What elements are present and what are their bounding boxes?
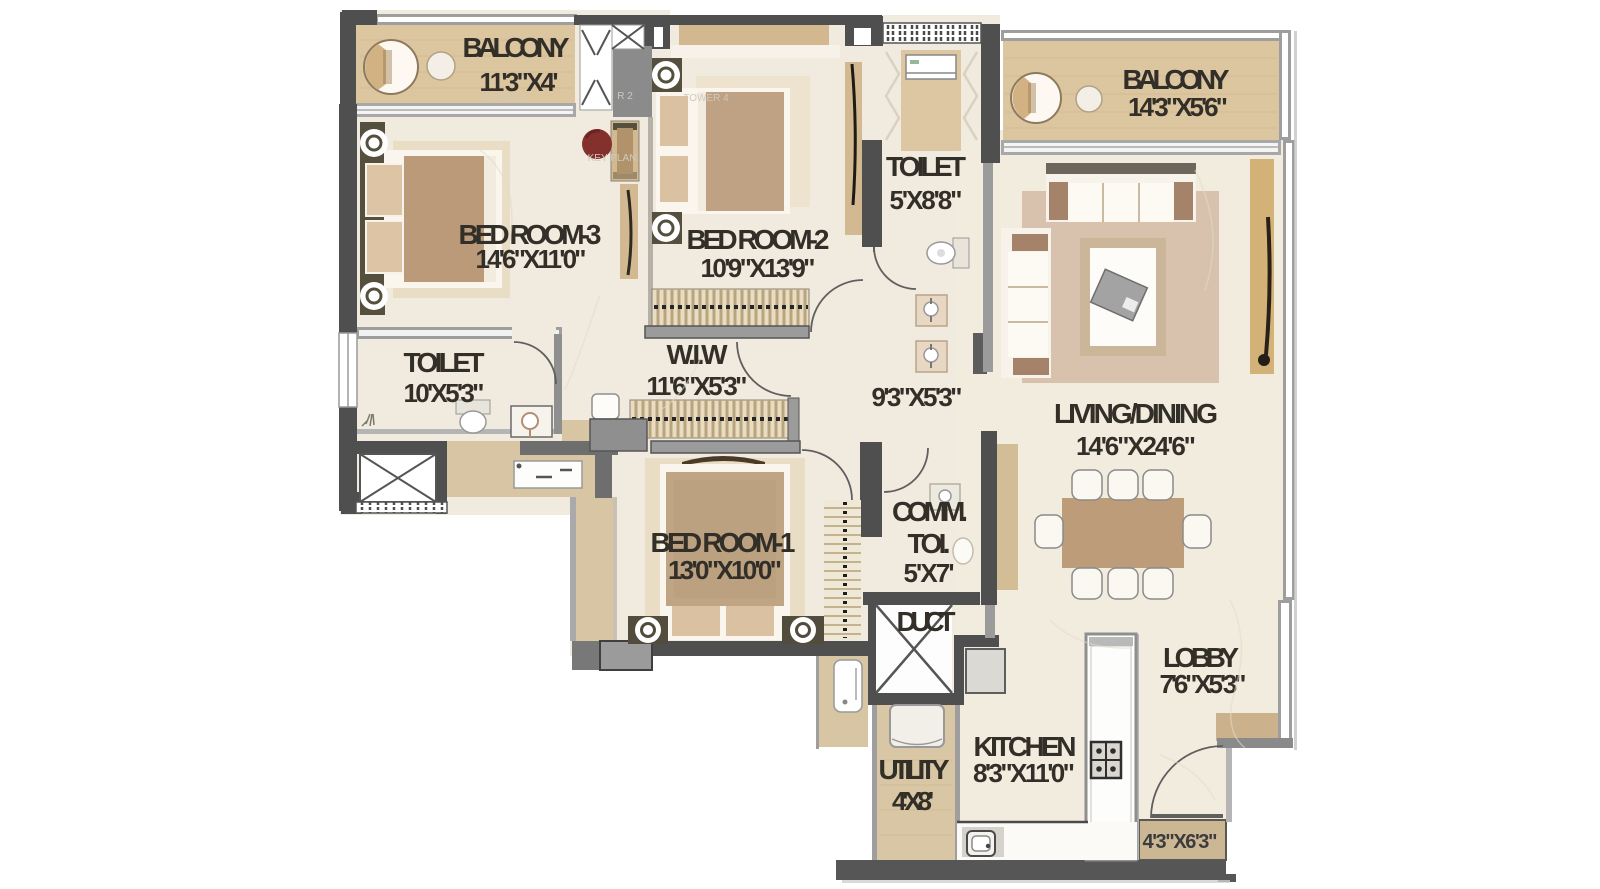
svg-text:TOILET: TOILET (404, 347, 485, 378)
svg-text:COMM.: COMM. (892, 496, 968, 527)
svg-text:UTILITY: UTILITY (879, 754, 950, 785)
svg-text:TOWER 1: TOWER 1 (482, 93, 528, 104)
svg-text:TOWER 4: TOWER 4 (683, 93, 729, 104)
svg-text:BED ROOM-2: BED ROOM-2 (687, 224, 830, 255)
svg-text:BALCONY: BALCONY (463, 32, 570, 63)
svg-text:4'X8': 4'X8' (892, 786, 934, 816)
svg-text:5'X8'8": 5'X8'8" (890, 185, 963, 215)
svg-text:KEY PLAN: KEY PLAN (588, 153, 637, 164)
svg-text:14'6"X11'0": 14'6"X11'0" (476, 244, 587, 274)
svg-text:LIVING/DINING: LIVING/DINING (1054, 398, 1218, 429)
svg-text:5'X7': 5'X7' (904, 558, 955, 588)
svg-text:14'3"X5'6": 14'3"X5'6" (1128, 92, 1228, 122)
svg-text:8'3"X11'0": 8'3"X11'0" (973, 758, 1075, 788)
svg-text:4'3"X6'3": 4'3"X6'3" (1143, 831, 1218, 853)
svg-text:BED ROOM-1: BED ROOM-1 (651, 527, 796, 558)
svg-text:14'6"X24'6": 14'6"X24'6" (1076, 431, 1196, 461)
svg-text:11'6"X5'3": 11'6"X5'3" (647, 371, 748, 401)
svg-text:TOI.: TOI. (908, 528, 951, 559)
svg-text:TOILET: TOILET (886, 151, 966, 182)
svg-text:DUCT: DUCT (897, 606, 956, 637)
svg-text:10'X5'3": 10'X5'3" (404, 378, 485, 408)
svg-text:R 2: R 2 (617, 91, 633, 102)
svg-text:10'9"X13'9": 10'9"X13'9" (701, 253, 816, 283)
svg-text:13'0"X10'0": 13'0"X10'0" (668, 555, 782, 585)
svg-text:BALCONY: BALCONY (1123, 64, 1230, 95)
svg-text:9'3"X5'3": 9'3"X5'3" (872, 382, 963, 412)
